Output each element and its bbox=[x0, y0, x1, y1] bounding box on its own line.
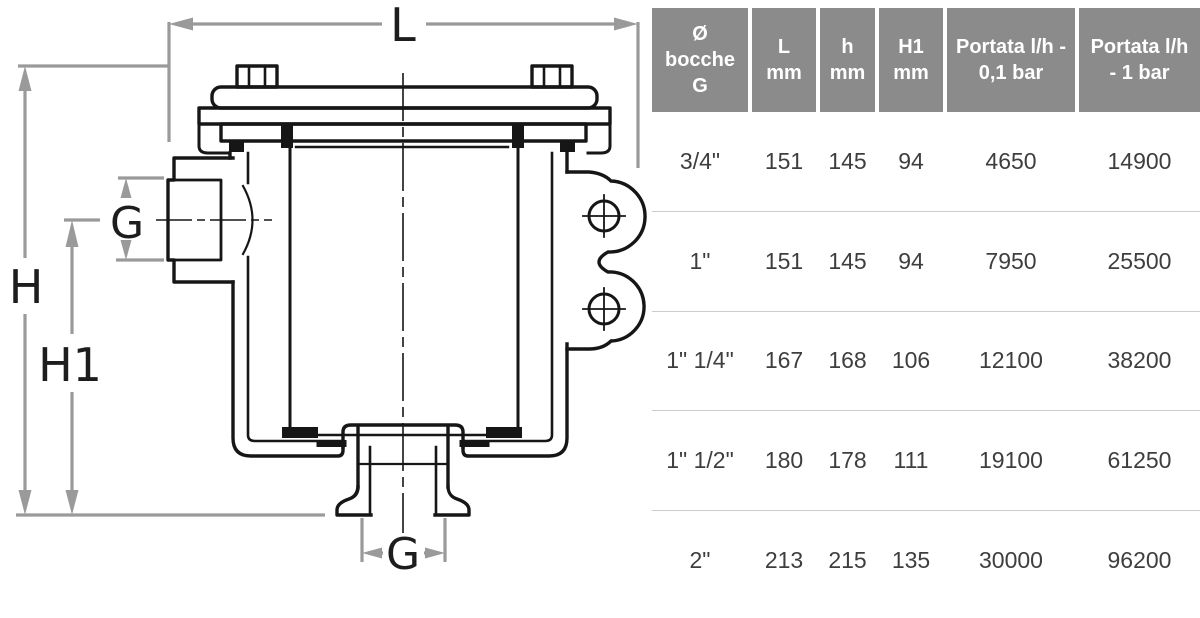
lid bbox=[199, 87, 610, 153]
lid-hook-left bbox=[199, 124, 230, 153]
label-G-inlet: G bbox=[110, 198, 144, 249]
header-line: mm bbox=[766, 60, 802, 86]
cell-h: 145 bbox=[820, 148, 875, 175]
cell-H1: 106 bbox=[879, 347, 943, 374]
cell-size: 3/4" bbox=[652, 148, 748, 175]
dimension-lines bbox=[16, 22, 638, 562]
arrow-H-up bbox=[19, 66, 32, 91]
label-G-outlet: G bbox=[386, 529, 420, 580]
basket-clip-left bbox=[281, 124, 293, 148]
header-line: G bbox=[692, 73, 708, 99]
basket-clip-right bbox=[512, 124, 524, 148]
hole-crosshair-top bbox=[583, 195, 625, 237]
arrow-G-outlet-left bbox=[362, 548, 382, 559]
page: L H H1 G G bbox=[0, 0, 1200, 618]
cell-H1: 94 bbox=[879, 148, 943, 175]
cell-size: 2" bbox=[652, 547, 748, 574]
table-body: 3/4" 151 145 94 4650 14900 1" 151 145 94… bbox=[652, 112, 1200, 610]
table-row: 1" 1/4" 167 168 106 12100 38200 bbox=[652, 311, 1200, 411]
header-line: Portata l/h - bbox=[956, 34, 1066, 60]
cell-size: 1" 1/2" bbox=[652, 447, 748, 474]
lid-hook-right bbox=[588, 124, 610, 153]
header-line: mm bbox=[893, 60, 929, 86]
mounting-bracket bbox=[567, 172, 645, 349]
arrow-G-inlet-up bbox=[121, 178, 132, 198]
spec-table: Ø bocche G L mm h mm H1 mm Portata l/h -… bbox=[650, 0, 1200, 618]
hole-crosshair-bottom bbox=[583, 288, 625, 330]
table-header: Ø bocche G L mm h mm H1 mm Portata l/h -… bbox=[652, 8, 1200, 112]
cell-portata-01: 12100 bbox=[947, 347, 1075, 374]
cell-portata-01: 19100 bbox=[947, 447, 1075, 474]
arrow-H-down bbox=[19, 490, 32, 515]
col-header-H1: H1 mm bbox=[879, 8, 943, 112]
header-line: Ø bbox=[692, 21, 708, 47]
cell-H1: 94 bbox=[879, 248, 943, 275]
cell-h: 178 bbox=[820, 447, 875, 474]
cell-L: 151 bbox=[752, 248, 816, 275]
dimension-arrowheads bbox=[19, 18, 639, 559]
header-line: L bbox=[778, 34, 790, 60]
cell-portata-1: 14900 bbox=[1079, 148, 1200, 175]
basket-feet bbox=[282, 427, 522, 438]
arrow-L-left bbox=[169, 18, 193, 31]
label-H: H bbox=[9, 260, 44, 314]
cell-L: 213 bbox=[752, 547, 816, 574]
table-row: 3/4" 151 145 94 4650 14900 bbox=[652, 112, 1200, 211]
bolt-right bbox=[532, 66, 572, 87]
cell-L: 180 bbox=[752, 447, 816, 474]
arrow-H1-down bbox=[66, 490, 79, 515]
arrow-H1-up bbox=[66, 220, 79, 247]
cell-portata-01: 4650 bbox=[947, 148, 1075, 175]
bolt-left bbox=[237, 66, 277, 87]
cell-L: 151 bbox=[752, 148, 816, 175]
cell-portata-1: 38200 bbox=[1079, 347, 1200, 374]
filter-basket bbox=[290, 147, 518, 435]
strainer-drawing: L H H1 G G bbox=[0, 0, 650, 618]
cell-portata-1: 61250 bbox=[1079, 447, 1200, 474]
cell-h: 215 bbox=[820, 547, 875, 574]
header-line: bocche bbox=[665, 47, 735, 73]
header-line: h bbox=[841, 34, 853, 60]
cell-portata-01: 30000 bbox=[947, 547, 1075, 574]
col-header-portata-1bar: Portata l/h - 1 bar bbox=[1079, 8, 1200, 112]
col-header-h: h mm bbox=[820, 8, 875, 112]
cell-L: 167 bbox=[752, 347, 816, 374]
header-line: H1 bbox=[898, 34, 924, 60]
strainer-drawing-panel: L H H1 G G bbox=[0, 0, 650, 618]
shell-inner-right bbox=[463, 153, 552, 441]
header-line: Portata l/h bbox=[1091, 34, 1189, 60]
cell-h: 168 bbox=[820, 347, 875, 374]
arrow-G-outlet-right bbox=[425, 548, 445, 559]
cell-H1: 111 bbox=[879, 447, 943, 474]
col-header-portata-01bar: Portata l/h - 0,1 bar bbox=[947, 8, 1075, 112]
label-H1: H1 bbox=[38, 338, 102, 392]
header-line: mm bbox=[830, 60, 866, 86]
cell-size: 1" 1/4" bbox=[652, 347, 748, 374]
header-line: 0,1 bar bbox=[979, 60, 1043, 86]
col-header-bocche: Ø bocche G bbox=[652, 8, 748, 112]
header-line: - 1 bar bbox=[1109, 60, 1169, 86]
table-row: 1" 1/2" 180 178 111 19100 61250 bbox=[652, 410, 1200, 510]
cell-size: 1" bbox=[652, 248, 748, 275]
cell-h: 145 bbox=[820, 248, 875, 275]
table-row: 1" 151 145 94 7950 25500 bbox=[652, 211, 1200, 311]
label-L: L bbox=[390, 0, 416, 52]
table-row: 2" 213 215 135 30000 96200 bbox=[652, 510, 1200, 610]
col-header-L: L mm bbox=[752, 8, 816, 112]
shell-inner-left bbox=[248, 153, 343, 441]
cell-H1: 135 bbox=[879, 547, 943, 574]
cell-portata-01: 7950 bbox=[947, 248, 1075, 275]
strainer-body bbox=[168, 66, 645, 515]
arrow-L-right bbox=[614, 18, 638, 31]
cell-portata-1: 96200 bbox=[1079, 547, 1200, 574]
cell-portata-1: 25500 bbox=[1079, 248, 1200, 275]
